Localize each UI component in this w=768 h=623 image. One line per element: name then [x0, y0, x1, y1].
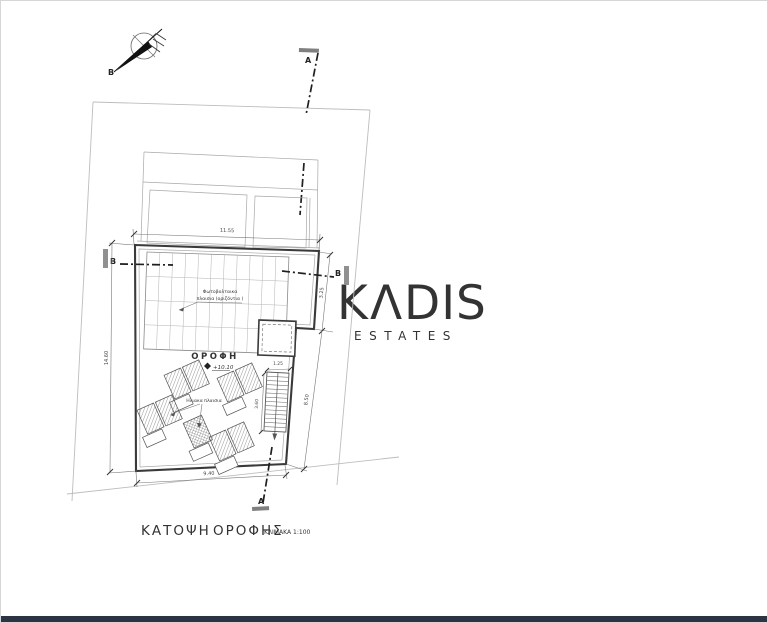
solar-label: Ηλιακα πλαισια — [186, 398, 222, 404]
stair-bulkhead — [258, 320, 296, 356]
dim-stair-run: 3.60 — [254, 399, 260, 409]
roof-level-value: +10.10 — [213, 365, 234, 371]
section-a-bottom-label: A — [258, 497, 265, 506]
watermark-letter-a: Λ — [370, 276, 402, 331]
section-b-left-label: B — [110, 257, 116, 266]
brand-watermark: K Λ DIS ESTATES — [337, 276, 487, 343]
watermark-subtitle: ESTATES — [354, 329, 458, 343]
level-marker-icon — [204, 363, 211, 370]
staircase — [263, 372, 289, 441]
dim-top: 11.55 — [220, 228, 235, 234]
footer-accent-bar — [1, 616, 767, 622]
dim-stair-width: 1.25 — [273, 361, 283, 367]
skylight-left — [147, 190, 247, 247]
roof-title-label: ΟΡΟΦΗ — [191, 352, 239, 362]
drawing-scale: ΚΛΙΜΑΚΑ 1:100 — [264, 529, 311, 536]
stair-direction-arrow — [272, 433, 277, 440]
title-block: ΚΑΤΟΨΗ ΟΡΟΦΗΣ ΚΛΙΜΑΚΑ 1:100 — [141, 523, 311, 539]
dim-right-lower: 8.50 — [303, 394, 310, 406]
dim-left: 14.60 — [104, 351, 110, 365]
section-b-right-label: B — [335, 269, 341, 278]
section-marker-a-bottom: A — [252, 447, 272, 511]
section-a-top-label: A — [305, 56, 312, 65]
dim-bottom: 9.40 — [203, 471, 214, 478]
dim-right-upper: 3.25 — [319, 287, 326, 299]
watermark-letters-dis: DIS — [404, 276, 487, 331]
solar-collector-units — [132, 360, 268, 475]
north-arrow-icon: B — [108, 29, 166, 77]
drawing-title-word1: ΚΑΤΟΨΗ — [141, 523, 211, 539]
skylight-right — [253, 196, 307, 248]
drawing-sheet: K Λ DIS ESTATES B A — [0, 0, 768, 623]
north-label: B — [108, 68, 114, 77]
pv-label-line2: πλαισια (οριζόντια ) — [197, 295, 244, 302]
floor-plan-canvas: K Λ DIS ESTATES B A — [1, 1, 768, 623]
pv-label-line1: Φωτοβολταικα — [203, 289, 238, 295]
